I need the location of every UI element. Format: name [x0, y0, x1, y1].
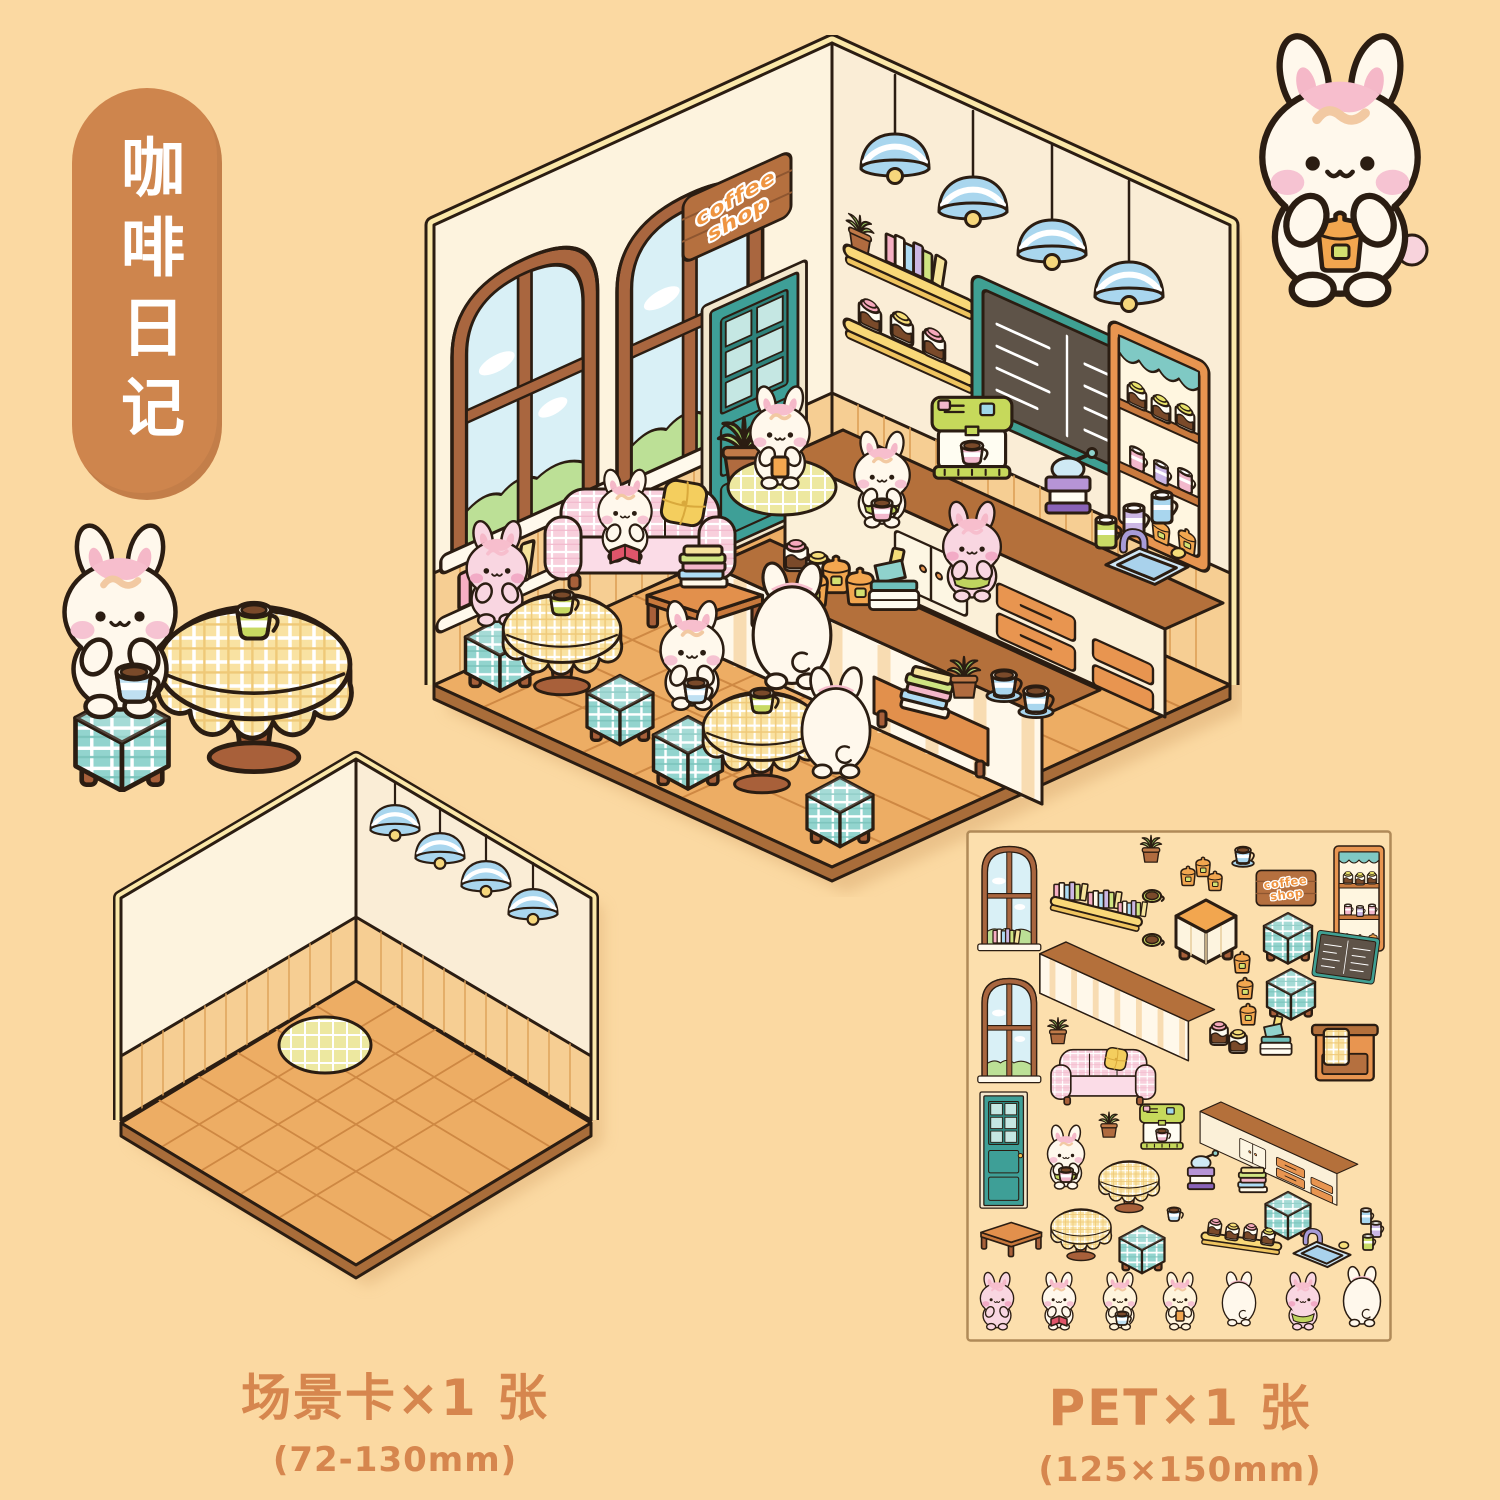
sticker-towel-cabinet [1312, 1025, 1378, 1080]
vignette-round-table [158, 603, 352, 772]
title-badge: 咖啡日记 [72, 88, 222, 500]
pet-sticker-sheet [966, 830, 1392, 1342]
product-image: coffee shop [0, 0, 1500, 1500]
pet-sheet-size: (125×150mm) [950, 1450, 1410, 1490]
vignette-bunny [65, 522, 176, 717]
sticker-window-2 [978, 979, 1041, 1083]
title-badge-text: 咖啡日记 [115, 134, 179, 454]
sticker-chalkboard [1312, 930, 1381, 984]
sticker-door [980, 1092, 1027, 1208]
scene-card-size: (72-130mm) [160, 1440, 630, 1480]
pet-sheet-label: PET×1 张 [950, 1368, 1410, 1440]
scene-card-caption: 场景卡×1 张 (72-130mm) [160, 1358, 630, 1480]
espresso-machine [932, 397, 1012, 478]
scene-card-label: 场景卡×1 张 [160, 1358, 630, 1430]
sticker-coffee-shop-sign [1256, 870, 1315, 905]
pet-sheet-caption: PET×1 张 (125×150mm) [950, 1368, 1410, 1490]
card-rug [279, 1017, 371, 1073]
sticker-book-stack [1238, 1168, 1267, 1193]
sticker-espresso-machine [1140, 1104, 1184, 1149]
sticker-sofa [1051, 1047, 1156, 1105]
scene-card-empty-room [88, 748, 648, 1308]
card-room-shell [88, 759, 640, 1296]
sticker-window-with-books [978, 847, 1041, 951]
sticker-cup-and-saucer [1232, 847, 1254, 867]
mascot-bunny-with-coffee-bag [1232, 22, 1452, 322]
sofa-pillow [660, 479, 709, 528]
